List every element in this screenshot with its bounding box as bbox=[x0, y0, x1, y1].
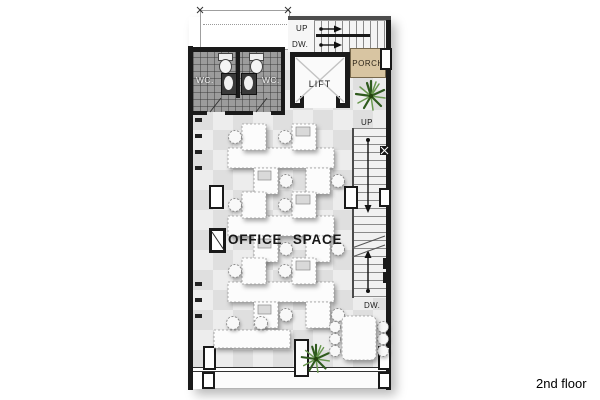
left-column-mid bbox=[209, 185, 224, 209]
left-wall bbox=[188, 46, 193, 390]
window-tick bbox=[195, 166, 202, 170]
balcony-ledge bbox=[204, 372, 381, 389]
wc-bottom-wall-mid bbox=[225, 111, 253, 115]
floor-plan: PORCH bbox=[0, 0, 600, 400]
right-stair-down-label: DW. bbox=[364, 301, 380, 310]
stair-column-right bbox=[379, 188, 391, 207]
window-tick bbox=[195, 118, 202, 122]
stair-column-left bbox=[344, 186, 358, 209]
right-wall-block-1 bbox=[383, 258, 390, 269]
right-staircase bbox=[352, 128, 387, 298]
left-shaft-box bbox=[209, 228, 226, 253]
window-tick bbox=[195, 134, 202, 138]
void-area bbox=[200, 10, 290, 50]
office-space-label: OFFICE SPACE bbox=[228, 232, 342, 247]
top-stair-down-label: DW. bbox=[292, 40, 308, 49]
porch-column bbox=[380, 48, 392, 70]
bottom-column-left bbox=[203, 346, 216, 370]
window-tick bbox=[195, 298, 202, 302]
sink-basin-icon bbox=[244, 76, 253, 90]
right-stair-up-label: UP bbox=[361, 118, 373, 127]
void-dashed-line bbox=[203, 24, 287, 25]
porch-label: PORCH bbox=[352, 59, 383, 68]
floor-caption: 2nd floor bbox=[536, 376, 587, 391]
lift-door-stub-right bbox=[336, 96, 340, 106]
top-wall bbox=[288, 16, 391, 20]
wc-left-label: WC. bbox=[196, 75, 214, 85]
wc-right-wall bbox=[281, 47, 285, 115]
wc-bottom-wall-right bbox=[271, 111, 285, 115]
balcony-column-right bbox=[378, 372, 391, 389]
window-tick bbox=[195, 150, 202, 154]
toilet-icon bbox=[250, 59, 263, 74]
lift-label: LIFT bbox=[290, 79, 350, 89]
window-tick bbox=[195, 314, 202, 318]
sink-basin-icon bbox=[224, 76, 233, 90]
bottom-column-right bbox=[378, 346, 391, 370]
lift-door-stub-left bbox=[300, 96, 304, 106]
wc-right-label: WC. bbox=[262, 75, 280, 85]
balcony-column-left bbox=[202, 372, 215, 389]
top-stair-up-label: UP bbox=[296, 24, 308, 33]
window-tick bbox=[195, 282, 202, 286]
toilet-icon bbox=[219, 59, 232, 74]
right-wall-block-2 bbox=[383, 272, 390, 283]
wc-bottom-wall-left bbox=[193, 111, 207, 115]
top-staircase-rail bbox=[316, 34, 370, 37]
